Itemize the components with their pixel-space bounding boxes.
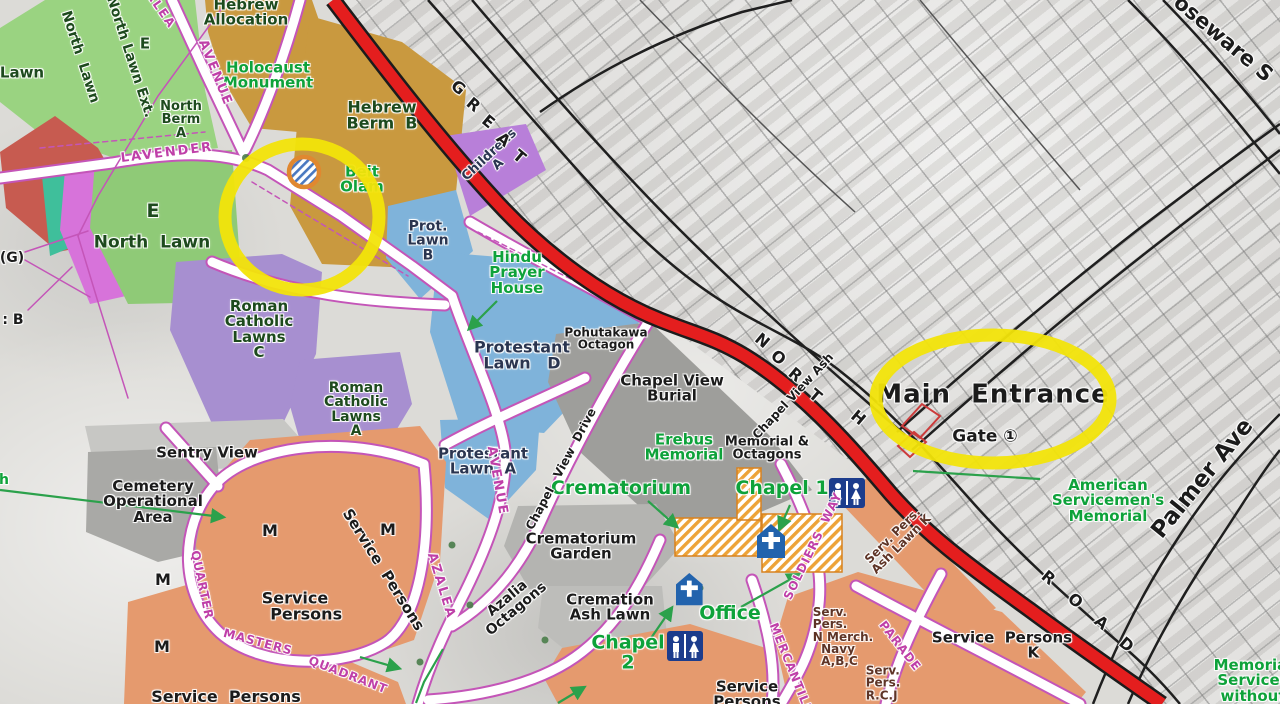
label-main-entrance: Main Entrance bbox=[876, 382, 1110, 409]
label-cemetery-operational-area: Cemetery Operational Area bbox=[103, 479, 203, 525]
label-e-top: E bbox=[140, 36, 150, 51]
label-pohutakawa-octagon: Pohutakawa Octagon bbox=[564, 327, 647, 352]
label-m-4: M bbox=[154, 639, 170, 655]
label-sentry-view: Sentry View bbox=[156, 445, 258, 460]
label-chapel-2: Chapel 2 bbox=[591, 633, 664, 672]
label-service-persons-bottom-center: Service Persons bbox=[713, 680, 780, 704]
label-service-persons-bottom-left: Service Persons bbox=[151, 689, 301, 704]
label-erebus-memorial: Erebus Memorial bbox=[645, 433, 724, 464]
toilets-icon-chapel2 bbox=[667, 631, 703, 661]
label-north-berm-a: North Berm A bbox=[160, 100, 202, 140]
label-serv-pers-merch-navy: Serv. Pers. N Merch. Navy A,B,C bbox=[813, 606, 873, 668]
label-crematorium-garden: Crematorium Garden bbox=[526, 532, 637, 563]
label-hebrew-allocation: Hebrew Allocation bbox=[204, 0, 289, 28]
label-h-green: h bbox=[0, 473, 9, 487]
label-service-persons-quadrant: Service Persons bbox=[248, 591, 342, 624]
chapel-2-icon bbox=[676, 573, 703, 605]
label-g-paren: (G) bbox=[0, 251, 24, 265]
label-memorial-octagons: Memorial & Octagons bbox=[725, 436, 809, 463]
label-american-servicemens-memorial: American Servicemen's Memorial bbox=[1052, 478, 1164, 524]
label-roman-catholic-lawns-a: Roman Catholic Lawns A bbox=[324, 381, 388, 439]
label-gate-1: Gate ① bbox=[952, 428, 1017, 446]
label-chapel-1: Chapel 1 bbox=[735, 479, 828, 499]
label-beit-olam: Beit Olam bbox=[340, 165, 384, 196]
label-b-colon: : B bbox=[2, 313, 23, 327]
label-chapel-view-burial: Chapel View Burial bbox=[620, 374, 724, 405]
label-hebrew-berm-b: Hebrew Berm B bbox=[347, 100, 418, 133]
label-protestant-lawn-d: Protestant Lawn D bbox=[474, 340, 570, 373]
label-m-1: M bbox=[262, 523, 278, 539]
label-lawn-left: Lawn bbox=[0, 65, 44, 80]
cemetery-map: Hebrew Allocation Holocaust Monument Heb… bbox=[0, 0, 1280, 704]
label-holocaust-monument: Holocaust Monument bbox=[223, 61, 313, 92]
label-roman-catholic-lawns-c: Roman Catholic Lawns C bbox=[225, 299, 293, 361]
label-north-lawn-mid: North Lawn bbox=[94, 234, 210, 252]
label-protestant-lawn-a: Protestant Lawn A bbox=[438, 447, 528, 478]
label-hindu-prayer-house: Hindu Prayer House bbox=[489, 250, 544, 296]
label-cremation-ash-lawn: Cremation Ash Lawn bbox=[566, 593, 654, 624]
label-memorial-services-without: Memorial Services without bbox=[1214, 658, 1280, 704]
label-serv-pers-rcj: Serv. Pers. R.C.J bbox=[866, 664, 901, 701]
label-office: Office bbox=[699, 604, 761, 624]
beit-olam-symbol-icon bbox=[289, 157, 319, 187]
label-m-2: M bbox=[380, 522, 396, 538]
label-m-3: M bbox=[155, 572, 171, 588]
label-e-mid: E bbox=[147, 202, 160, 222]
label-prot-lawn-b: Prot. Lawn B bbox=[407, 219, 448, 262]
label-service-persons-k: Service Persons K bbox=[932, 631, 1072, 662]
label-crematorium: Crematorium bbox=[551, 479, 691, 499]
